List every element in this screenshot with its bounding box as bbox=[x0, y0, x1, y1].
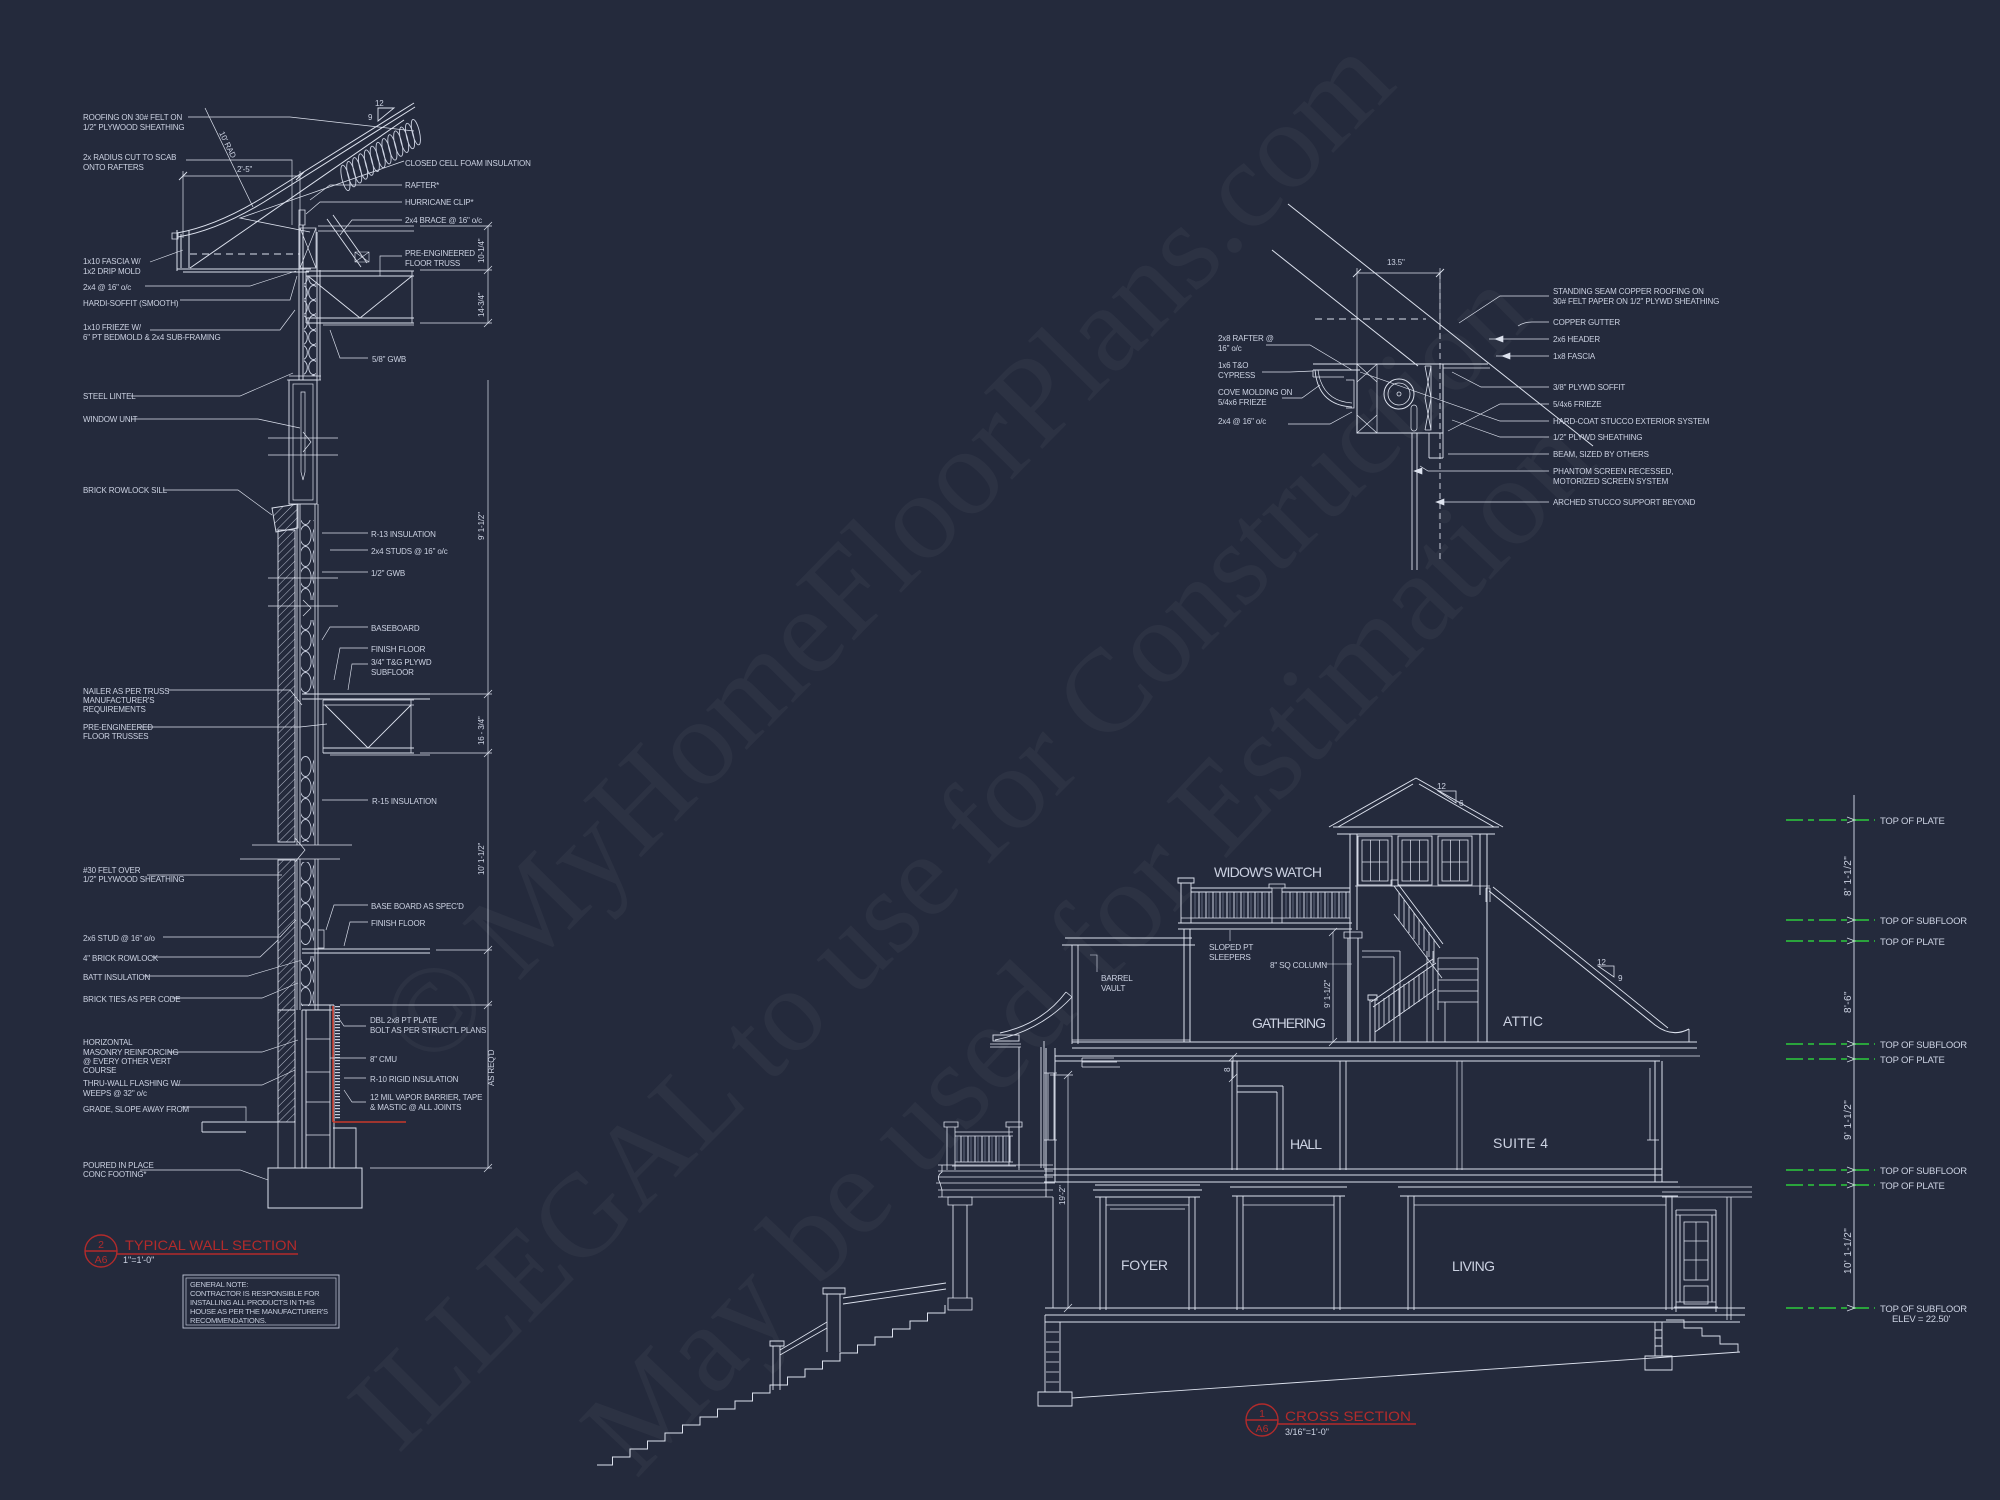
svg-text:8: 8 bbox=[1223, 1067, 1232, 1072]
svg-text:1x2 DRIP MOLD: 1x2 DRIP MOLD bbox=[83, 267, 141, 276]
svg-text:WINDOW UNIT: WINDOW UNIT bbox=[83, 415, 138, 424]
svg-text:BRICK TIES AS PER CODE: BRICK TIES AS PER CODE bbox=[83, 995, 180, 1004]
svg-text:1/2" PLYWOOD SHEATHING: 1/2" PLYWOOD SHEATHING bbox=[83, 875, 185, 884]
svg-text:R-13 INSULATION: R-13 INSULATION bbox=[371, 530, 436, 539]
svg-text:AS REQ'D: AS REQ'D bbox=[487, 1049, 496, 1086]
svg-text:10' 1-1/2": 10' 1-1/2" bbox=[1843, 1228, 1854, 1274]
svg-text:A6: A6 bbox=[95, 1254, 108, 1266]
svg-text:INSTALLING ALL PRODUCTS IN THI: INSTALLING ALL PRODUCTS IN THIS bbox=[190, 1298, 315, 1307]
svg-text:1x10 FRIEZE W/: 1x10 FRIEZE W/ bbox=[83, 323, 142, 332]
svg-text:DBL 2x8 PT PLATE: DBL 2x8 PT PLATE bbox=[370, 1016, 437, 1025]
svg-text:RECOMMENDATIONS.: RECOMMENDATIONS. bbox=[190, 1316, 267, 1325]
svg-text:#30 FELT OVER: #30 FELT OVER bbox=[83, 866, 141, 875]
svg-text:BASE BOARD AS SPEC'D: BASE BOARD AS SPEC'D bbox=[371, 902, 464, 911]
svg-text:9' 1-1/2": 9' 1-1/2" bbox=[1843, 1100, 1854, 1140]
svg-text:CROSS SECTION: CROSS SECTION bbox=[1285, 1408, 1411, 1424]
svg-text:SUBFLOOR: SUBFLOOR bbox=[371, 668, 414, 677]
svg-text:8'-6": 8'-6" bbox=[1843, 991, 1854, 1013]
svg-text:& MASTIC @ ALL JOINTS: & MASTIC @ ALL JOINTS bbox=[370, 1103, 461, 1112]
svg-text:2: 2 bbox=[98, 1239, 104, 1251]
svg-text:CONTRACTOR IS RESPONSIBLE FOR: CONTRACTOR IS RESPONSIBLE FOR bbox=[190, 1289, 320, 1298]
svg-text:A6: A6 bbox=[1256, 1423, 1269, 1435]
svg-text:REQUIREMENTS: REQUIREMENTS bbox=[83, 705, 146, 714]
svg-text:PRE-ENGINEERED: PRE-ENGINEERED bbox=[83, 723, 153, 732]
svg-text:3/16"=1'-0": 3/16"=1'-0" bbox=[1285, 1427, 1329, 1437]
svg-text:@ EVERY OTHER VERT: @ EVERY OTHER VERT bbox=[83, 1057, 171, 1066]
svg-text:12 MIL VAPOR BARRIER, TAPE: 12 MIL VAPOR BARRIER, TAPE bbox=[370, 1093, 482, 1102]
svg-text:THRU-WALL FLASHING W/: THRU-WALL FLASHING W/ bbox=[83, 1079, 181, 1088]
svg-text:MOTORIZED SCREEN SYSTEM: MOTORIZED SCREEN SYSTEM bbox=[1553, 477, 1669, 486]
svg-text:GATHERING: GATHERING bbox=[1252, 1015, 1326, 1031]
svg-text:SLOPED PT: SLOPED PT bbox=[1209, 943, 1253, 952]
svg-text:9: 9 bbox=[368, 113, 373, 122]
svg-text:WEEPS @ 32" o/c: WEEPS @ 32" o/c bbox=[83, 1089, 147, 1098]
svg-text:COPPER GUTTER: COPPER GUTTER bbox=[1553, 318, 1620, 327]
svg-text:BASEBOARD: BASEBOARD bbox=[371, 624, 420, 633]
svg-text:5/8" GWB: 5/8" GWB bbox=[372, 355, 406, 364]
svg-text:4" BRICK ROWLOCK: 4" BRICK ROWLOCK bbox=[83, 954, 159, 963]
svg-text:8" SQ COLUMN: 8" SQ COLUMN bbox=[1270, 961, 1327, 970]
svg-text:FINISH FLOOR: FINISH FLOOR bbox=[371, 645, 426, 654]
svg-text:30# FELT PAPER ON 1/2" PLYWD S: 30# FELT PAPER ON 1/2" PLYWD SHEATHING bbox=[1553, 297, 1719, 306]
svg-text:ONTO RAFTERS: ONTO RAFTERS bbox=[83, 163, 144, 172]
svg-text:5/4x6 FRIEZE: 5/4x6 FRIEZE bbox=[1553, 400, 1601, 409]
svg-text:6" PT BEDMOLD & 2x4 SUB-FRAMIN: 6" PT BEDMOLD & 2x4 SUB-FRAMING bbox=[83, 333, 221, 342]
svg-text:8' 1-1/2": 8' 1-1/2" bbox=[1843, 856, 1854, 896]
svg-text:BEAM, SIZED BY OTHERS: BEAM, SIZED BY OTHERS bbox=[1553, 450, 1649, 459]
svg-text:PHANTOM SCREEN RECESSED,: PHANTOM SCREEN RECESSED, bbox=[1553, 467, 1673, 476]
svg-text:1: 1 bbox=[1259, 1408, 1265, 1420]
svg-text:ROOFING ON 30# FELT ON: ROOFING ON 30# FELT ON bbox=[83, 113, 182, 122]
svg-text:WIDOW'S WATCH: WIDOW'S WATCH bbox=[1214, 864, 1322, 880]
svg-text:12: 12 bbox=[375, 99, 384, 108]
svg-text:R-15 INSULATION: R-15 INSULATION bbox=[372, 797, 437, 806]
svg-text:CYPRESS: CYPRESS bbox=[1218, 371, 1255, 380]
svg-text:TOP OF SUBFLOOR: TOP OF SUBFLOOR bbox=[1880, 1166, 1967, 1177]
svg-text:HARD-COAT STUCCO EXTERIOR SYST: HARD-COAT STUCCO EXTERIOR SYSTEM bbox=[1553, 417, 1710, 426]
svg-text:2x6 STUD @ 16" o/o: 2x6 STUD @ 16" o/o bbox=[83, 934, 156, 943]
svg-text:TOP OF SUBFLOOR: TOP OF SUBFLOOR bbox=[1880, 1040, 1967, 1051]
svg-text:3/4" T&G PLYWD: 3/4" T&G PLYWD bbox=[371, 658, 432, 667]
svg-text:12: 12 bbox=[1597, 958, 1606, 967]
svg-text:3/8" PLYWD SOFFIT: 3/8" PLYWD SOFFIT bbox=[1553, 383, 1625, 392]
svg-text:PRE-ENGINEERED: PRE-ENGINEERED bbox=[405, 249, 475, 258]
svg-text:ARCHED STUCCO SUPPORT BEYOND: ARCHED STUCCO SUPPORT BEYOND bbox=[1553, 498, 1696, 507]
svg-text:16 - 3/4": 16 - 3/4" bbox=[477, 716, 486, 745]
svg-text:HALL: HALL bbox=[1290, 1136, 1322, 1152]
svg-text:COURSE: COURSE bbox=[83, 1066, 116, 1075]
svg-text:5/4x6 FRIEZE: 5/4x6 FRIEZE bbox=[1218, 398, 1266, 407]
svg-text:1x10 FASCIA W/: 1x10 FASCIA W/ bbox=[83, 257, 141, 266]
svg-text:1/2" GWB: 1/2" GWB bbox=[371, 569, 405, 578]
svg-text:12: 12 bbox=[1437, 782, 1446, 791]
svg-text:9: 9 bbox=[1618, 974, 1623, 983]
svg-text:ELEV = 22.50': ELEV = 22.50' bbox=[1892, 1314, 1950, 1325]
svg-text:2'-5": 2'-5" bbox=[237, 165, 252, 174]
svg-text:FOYER: FOYER bbox=[1121, 1257, 1168, 1273]
svg-text:FLOOR TRUSSES: FLOOR TRUSSES bbox=[83, 732, 148, 741]
svg-text:STANDING SEAM COPPER ROOFING O: STANDING SEAM COPPER ROOFING ON bbox=[1553, 287, 1704, 296]
svg-text:8" CMU: 8" CMU bbox=[370, 1055, 397, 1064]
svg-text:FINISH FLOOR: FINISH FLOOR bbox=[371, 919, 426, 928]
svg-text:BOLT AS PER STRUCT'L PLANS: BOLT AS PER STRUCT'L PLANS bbox=[370, 1026, 486, 1035]
svg-text:TOP OF PLATE: TOP OF PLATE bbox=[1880, 1181, 1945, 1192]
svg-text:BRICK ROWLOCK SILL: BRICK ROWLOCK SILL bbox=[83, 486, 168, 495]
svg-text:CLOSED CELL FOAM INSULATION: CLOSED CELL FOAM INSULATION bbox=[405, 159, 531, 168]
svg-text:ATTIC: ATTIC bbox=[1503, 1013, 1543, 1029]
svg-text:1/2" PLYWD SHEATHING: 1/2" PLYWD SHEATHING bbox=[1553, 433, 1642, 442]
svg-text:HARDI-SOFFIT (SMOOTH): HARDI-SOFFIT (SMOOTH) bbox=[83, 299, 179, 308]
svg-text:GENERAL NOTE:: GENERAL NOTE: bbox=[190, 1280, 248, 1289]
svg-text:LIVING: LIVING bbox=[1452, 1258, 1495, 1274]
svg-text:GRADE, SLOPE AWAY FROM: GRADE, SLOPE AWAY FROM bbox=[83, 1105, 190, 1114]
svg-text:14-3/4": 14-3/4" bbox=[477, 292, 486, 317]
svg-text:CONC FOOTING*: CONC FOOTING* bbox=[83, 1170, 146, 1179]
svg-text:BATT INSULATION: BATT INSULATION bbox=[83, 973, 150, 982]
svg-text:2x RADIUS CUT TO SCAB: 2x RADIUS CUT TO SCAB bbox=[83, 153, 176, 162]
svg-text:6: 6 bbox=[1459, 799, 1464, 808]
svg-text:TYPICAL WALL SECTION: TYPICAL WALL SECTION bbox=[125, 1237, 297, 1253]
svg-text:TOP OF PLATE: TOP OF PLATE bbox=[1880, 816, 1945, 827]
svg-text:TOP OF SUBFLOOR: TOP OF SUBFLOOR bbox=[1880, 916, 1967, 927]
svg-text:VAULT: VAULT bbox=[1101, 984, 1125, 993]
svg-text:HOUSE AS PER THE MANUFACTURER': HOUSE AS PER THE MANUFACTURER'S bbox=[190, 1307, 328, 1316]
svg-text:MASONRY REINFORCING: MASONRY REINFORCING bbox=[83, 1048, 179, 1057]
svg-text:COVE MOLDING ON: COVE MOLDING ON bbox=[1218, 388, 1293, 397]
svg-text:2x4 STUDS @ 16" o/c: 2x4 STUDS @ 16" o/c bbox=[371, 547, 448, 556]
svg-text:HURRICANE CLIP*: HURRICANE CLIP* bbox=[405, 198, 473, 207]
svg-text:NAILER AS PER TRUSS: NAILER AS PER TRUSS bbox=[83, 687, 169, 696]
svg-text:2x8 RAFTER @: 2x8 RAFTER @ bbox=[1218, 334, 1274, 343]
svg-text:R-10 RIGID INSULATION: R-10 RIGID INSULATION bbox=[370, 1075, 459, 1084]
svg-text:TOP OF PLATE: TOP OF PLATE bbox=[1880, 937, 1945, 948]
svg-text:MANUFACTURER'S: MANUFACTURER'S bbox=[83, 696, 154, 705]
svg-text:SLEEPERS: SLEEPERS bbox=[1209, 953, 1251, 962]
svg-text:RAFTER*: RAFTER* bbox=[405, 181, 439, 190]
svg-text:13.5": 13.5" bbox=[1387, 258, 1405, 267]
svg-text:9' 1-1/2": 9' 1-1/2" bbox=[1323, 980, 1332, 1008]
svg-text:1/2" PLYWOOD SHEATHING: 1/2" PLYWOOD SHEATHING bbox=[83, 123, 185, 132]
svg-text:SUITE 4: SUITE 4 bbox=[1493, 1135, 1548, 1151]
svg-text:1x6 T&O: 1x6 T&O bbox=[1218, 361, 1248, 370]
svg-text:POURED IN PLACE: POURED IN PLACE bbox=[83, 1161, 154, 1170]
svg-text:2x6 HEADER: 2x6 HEADER bbox=[1553, 335, 1600, 344]
svg-text:1"=1'-0": 1"=1'-0" bbox=[123, 1255, 154, 1265]
svg-text:10-1/4": 10-1/4" bbox=[477, 238, 486, 263]
svg-text:STEEL LINTEL: STEEL LINTEL bbox=[83, 392, 136, 401]
svg-text:FLOOR TRUSS: FLOOR TRUSS bbox=[405, 259, 460, 268]
svg-text:9' 1-1/2": 9' 1-1/2" bbox=[477, 512, 486, 540]
svg-text:2x4 @ 16" o/c: 2x4 @ 16" o/c bbox=[1218, 417, 1266, 426]
svg-text:2x4 @ 16" o/c: 2x4 @ 16" o/c bbox=[83, 283, 131, 292]
svg-text:16" o/c: 16" o/c bbox=[1218, 344, 1242, 353]
svg-text:BARREL: BARREL bbox=[1101, 974, 1133, 983]
svg-text:1x8 FASCIA: 1x8 FASCIA bbox=[1553, 352, 1596, 361]
svg-text:TOP OF PLATE: TOP OF PLATE bbox=[1880, 1055, 1945, 1066]
svg-text:HORIZONTAL: HORIZONTAL bbox=[83, 1038, 133, 1047]
svg-text:2x4 BRACE @ 16" o/c: 2x4 BRACE @ 16" o/c bbox=[405, 216, 482, 225]
svg-text:19'-2": 19'-2" bbox=[1058, 1185, 1067, 1205]
svg-text:10' 1-1/2": 10' 1-1/2" bbox=[477, 842, 486, 875]
